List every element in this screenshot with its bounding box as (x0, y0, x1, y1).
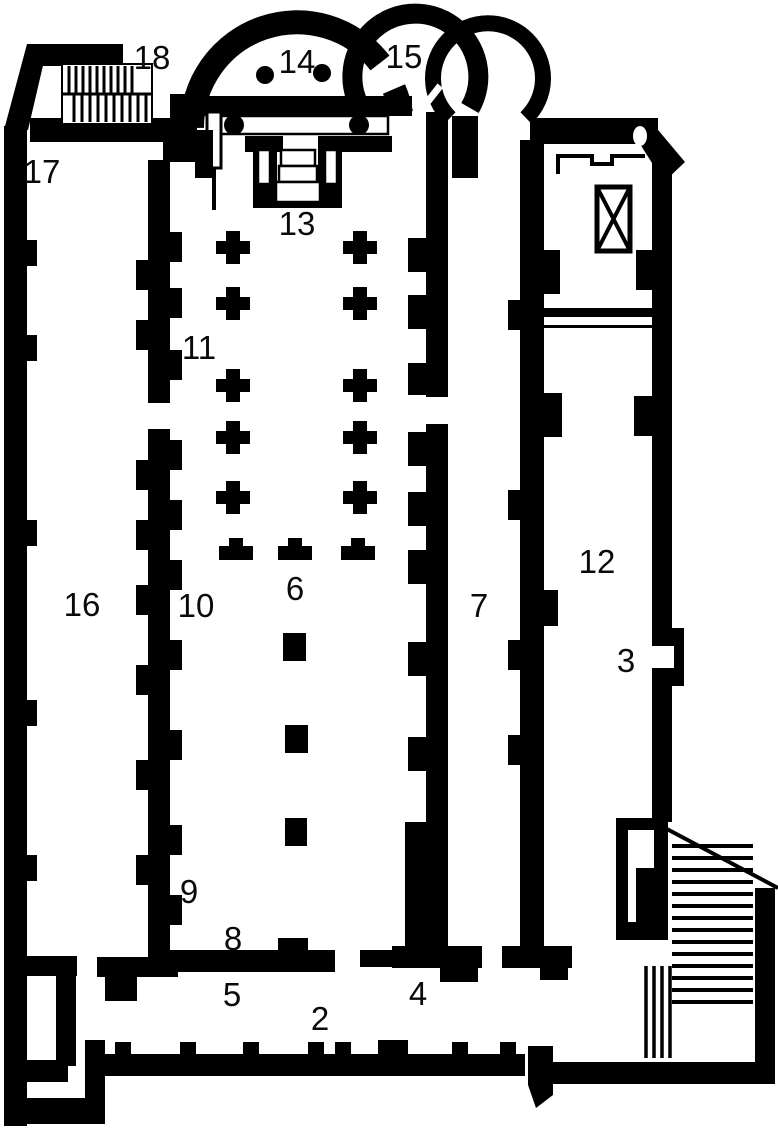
room-label-7: 7 (470, 587, 488, 624)
colonnade-top-stub-left (170, 94, 188, 142)
room-label-4: 4 (409, 975, 427, 1012)
baluster (325, 150, 337, 184)
room-label-14: 14 (279, 43, 316, 80)
door-opening (420, 397, 454, 424)
chancel-pier (405, 822, 445, 950)
room-label-18: 18 (134, 39, 171, 76)
room-label-3: 3 (617, 642, 635, 679)
room-label-2: 2 (311, 1000, 329, 1037)
room-label-16: 16 (64, 586, 101, 623)
apse-pier (452, 116, 478, 178)
pier-stub (540, 968, 568, 980)
room-label-15: 15 (386, 38, 423, 75)
room-label-10: 10 (178, 587, 215, 624)
screen-pier (105, 977, 137, 1001)
wall-jog-1 (4, 956, 77, 976)
floor-plan-page: 2 3 4 5 6 7 8 9 10 11 12 13 14 15 16 17 … (0, 0, 778, 1135)
door-3-opening (650, 646, 674, 668)
t-piers (219, 538, 375, 560)
floor-plan-svg: 2 3 4 5 6 7 8 9 10 11 12 13 14 15 16 17 … (0, 0, 778, 1135)
step (281, 150, 315, 166)
wall-right-upper (652, 158, 672, 648)
wall-top-left (27, 44, 123, 66)
baluster (258, 150, 270, 184)
chancel-pier-stub (440, 968, 478, 982)
room-label-8: 8 (224, 920, 242, 957)
stairs-right-wall (755, 888, 775, 1084)
wall-bottom-right (553, 1062, 775, 1084)
wall-jog-2 (56, 976, 76, 1066)
apse-column-dot (256, 66, 274, 84)
rail-column-dot (224, 115, 244, 135)
wall-jog-3 (20, 1060, 68, 1082)
room-label-13: 13 (279, 205, 316, 242)
porch-stub (636, 868, 654, 922)
chapel-step-line (544, 325, 654, 328)
step (276, 182, 320, 202)
wall-bottom (95, 1054, 525, 1076)
door-opening (146, 403, 172, 429)
room-label-9: 9 (180, 873, 198, 910)
room-label-6: 6 (286, 570, 304, 607)
chapel-step-band (544, 308, 654, 317)
platform-step-left (195, 130, 213, 178)
wall-notch (633, 126, 647, 146)
screen-bump (278, 938, 308, 951)
room-label-5: 5 (223, 976, 241, 1013)
room-label-17: 17 (24, 153, 61, 190)
pier-base (502, 946, 572, 968)
room-label-11: 11 (182, 329, 216, 366)
apse-column-dot (313, 64, 331, 82)
wall-bottom-left (4, 1098, 104, 1124)
room-label-12: 12 (579, 543, 616, 580)
step (279, 166, 317, 182)
wall-right-lower (652, 668, 672, 822)
rail-column-dot (349, 115, 369, 135)
